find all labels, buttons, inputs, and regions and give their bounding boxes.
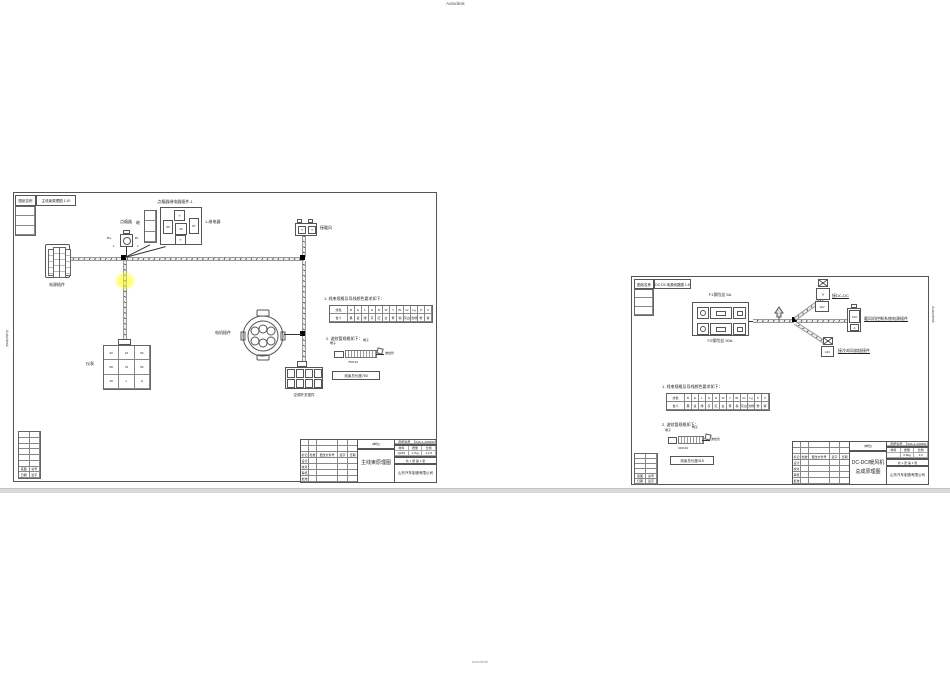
sheet-count: 共 1 张 第 1 张 [394, 457, 437, 464]
panel-branch-harness [302, 261, 306, 361]
grid-cell: 绿 [699, 402, 706, 410]
dcdc-label: 接DC-DC [832, 294, 849, 299]
grid-cell: 灰白 [404, 314, 411, 322]
fan-label: 接冷却风扇插接件 [838, 349, 870, 354]
relay-cell-top: T [174, 210, 185, 221]
relay-cell-right: 87 [189, 218, 199, 234]
signature-grid: 标记处数更改文件号签字日期设计校对审核批准 [300, 439, 358, 483]
grid-cell: 0.6kg [901, 453, 915, 458]
left-corner-table: 底图总号日期签字 [18, 431, 41, 479]
left-header-value: 主线束原理图 1:10 [36, 195, 76, 206]
sketch-tube [345, 350, 377, 358]
left-title-block: 标记处数更改文件号签字日期设计校对审核批准 (单位) 主线束原理图 图纸编号04… [300, 439, 437, 483]
relay-left-label: 继 [136, 221, 140, 226]
grid-cell: L [119, 375, 134, 389]
terminal-label-right: 端子 [363, 339, 369, 342]
material-grid: 材料质量比例Q2351.7kg1:2.5 [394, 445, 437, 457]
watermark-bottom: autodesk [472, 659, 488, 664]
heater-conn-v: 12V [849, 310, 860, 323]
grid-cell: G [369, 306, 376, 314]
watermark-right-edge: Autodesk [931, 306, 936, 323]
fuse-pin-left: B/+ [107, 237, 112, 240]
grid-cell: 1.7kg [409, 451, 423, 456]
left-revision-strip [15, 206, 36, 236]
grid-cell: 灰 [369, 314, 376, 322]
grid-cell: 图纸编号 [395, 440, 415, 444]
grid-cell: 黑 [348, 314, 355, 322]
grid-cell: 红 [376, 314, 383, 322]
grid-cell: 1:2 [914, 453, 928, 458]
material-grid: 材料质量比例0.6kg1:2 [886, 447, 929, 459]
right-title-block: 标记处数更改文件号签字日期设计校对审核批准 (单位) DC-DC/暖风机 总成原… [792, 441, 929, 485]
grid-cell: Y [390, 306, 397, 314]
left-note-1: 1. 线束规格及导线颜色要求如下： [324, 297, 384, 302]
grid-cell [887, 453, 901, 458]
grid-cell: W [383, 306, 390, 314]
grid-cell: B [685, 394, 692, 402]
drawing-title: DC-DC/暖风机 [850, 459, 886, 466]
title-cell: DC-DC/暖风机 总成原理图 [849, 451, 887, 485]
left-wire-table: 线色BELGRWYBrGrLgPV含义黑蓝绿灰红白黄棕灰白浅绿粉紫 [329, 305, 433, 323]
grid-cell: 浅绿 [748, 402, 755, 410]
unit-cell: (单位) [849, 441, 887, 451]
grid-cell: 红 [713, 402, 720, 410]
highlight-marker [116, 273, 134, 289]
sketch-dim: 750±10 [348, 361, 358, 364]
grid-cell: 批准 [793, 478, 801, 484]
grid-cell: 蓝 [355, 314, 362, 322]
relay-cell-bottom: T [175, 235, 186, 245]
grid-cell [635, 298, 653, 306]
grid-cell: 15 [119, 346, 134, 360]
grid-cell: 灰白 [741, 402, 748, 410]
drawing-title-2: 总成原理图 [850, 468, 886, 475]
watermark-top: Autodesk [446, 1, 465, 6]
dcdc-symbol-cell: Y [816, 288, 830, 300]
power-connector [45, 244, 70, 278]
grid-cell: 31 [119, 360, 134, 374]
r-sketch-terminal-left [668, 437, 677, 444]
grid-cell [801, 478, 809, 484]
drawing-title: 主线束原理图 [358, 459, 394, 466]
grid-cell: 粉 [755, 402, 762, 410]
grid-cell [145, 232, 156, 242]
right-drawing-sheet: 图纸名称 DC-DC电源线路图 1:5 F1保险丝 5A F2保险丝 20A Y… [631, 276, 929, 485]
grid-cell: 粉 [418, 314, 425, 322]
grid-cell: 日期 [635, 479, 646, 484]
total-length-box: 线束总长度750 [332, 371, 380, 380]
heater-cell-1: T [298, 226, 306, 234]
grid-cell: 含义 [330, 314, 348, 322]
grid-cell: 签字 [646, 479, 657, 484]
left-drawing-sheet: 图纸名称 主线束原理图 1:10 点烟器 B/+ B/- 1 1 点烟器继电器插… [13, 192, 437, 482]
grid-cell: 1:2.5 [422, 451, 436, 456]
grid-cell: Gr [741, 394, 748, 402]
grid-cell: Br [734, 394, 741, 402]
grid-cell: 白 [720, 402, 727, 410]
grid-cell: Y [727, 394, 734, 402]
grid-cell: L [699, 394, 706, 402]
tube-arrow [376, 354, 384, 355]
heater-connector: T T [295, 223, 317, 236]
harness-clip-icon [773, 306, 785, 320]
panel-connector-label: 空调开关插件 [280, 393, 328, 397]
grid-cell: 58 [104, 360, 119, 374]
unit-cell: (单位) [357, 439, 395, 449]
grid-cell: 30 [104, 346, 119, 360]
fuse-symbol [123, 237, 131, 245]
grid-cell [309, 476, 317, 482]
grid-cell: Q235 [395, 451, 409, 456]
sheet-count: 共 1 张 第 1 张 [886, 459, 929, 466]
grid-cell: H [135, 375, 150, 389]
grid-cell: 含义 [667, 402, 685, 410]
grid-cell: 黄 [727, 402, 734, 410]
r-sketch-tube [678, 436, 704, 444]
r-sketch-dim: 315±10 [678, 447, 688, 450]
grid-cell: 50 [135, 346, 150, 360]
relay-cell-left: 85 [163, 220, 173, 234]
grid-cell: B [348, 306, 355, 314]
heater-power-label: 暖风机控制系统电源插件 [864, 317, 908, 322]
grid-cell [145, 221, 156, 231]
grid-cell [317, 476, 338, 482]
relay-right-label: 1-继电器 [205, 220, 221, 225]
heater-branch-harness [302, 236, 306, 257]
grid-cell: 批准 [301, 476, 309, 482]
grid-cell: P [755, 394, 762, 402]
dcdc-terminal-icon [818, 279, 828, 287]
fuse2-label: F2保险丝 20A [690, 339, 750, 344]
grid-cell: V [762, 394, 769, 402]
grid-cell: E [692, 394, 699, 402]
fuse-sub-left: 1 [113, 245, 115, 248]
dcdc-voltage-cell: 12V [815, 301, 829, 312]
grid-cell [16, 226, 35, 235]
fuse1-label: F1保险丝 5A [690, 293, 750, 298]
grid-cell: Br [397, 306, 404, 314]
grid-cell: 灰 [706, 402, 713, 410]
fan-voltage-cell: 12V [821, 346, 834, 357]
grid-cell: Lg [411, 306, 418, 314]
company-name: 山东汽车制造有限公司 [394, 464, 437, 483]
relay-left-connector [144, 210, 157, 243]
grid-cell: Lg [748, 394, 755, 402]
grid-cell: 04A-4-A00000 [415, 440, 436, 444]
relay-title: 点烟器继电器插件-1 [140, 200, 210, 205]
fuse-box [692, 302, 749, 336]
heater-conn: 12V A [847, 308, 861, 332]
right-header-value: DC-DC电源线路图 1:5 [654, 279, 691, 289]
grid-cell: G [706, 394, 713, 402]
left-header-label: 图纸名称 [15, 195, 36, 206]
fuse-pin-right: B/- [135, 237, 139, 240]
grid-cell [338, 476, 348, 482]
title-cell: 主线束原理图 [357, 449, 395, 483]
meter-connector: 30155058315649LH [103, 345, 151, 390]
motor-connector-label: 电机插件 [215, 331, 231, 336]
r-total-length-box: 线束总长度318 [670, 456, 714, 465]
motor-lead [284, 334, 302, 335]
main-harness [69, 257, 304, 261]
fan-terminal-icon [823, 337, 833, 345]
r-terminal-label-left: 端子 [665, 429, 671, 432]
grid-cell: 图纸编号 [887, 442, 907, 446]
r-tube-arrow [702, 440, 710, 441]
grid-cell: 棕 [734, 402, 741, 410]
grid-cell: 56 [135, 360, 150, 374]
grid-cell: 签字 [30, 472, 41, 478]
grid-cell: 黄 [390, 314, 397, 322]
grid-cell: 04A-4-A00001 [907, 442, 928, 446]
heater-label: 接暖风 [320, 226, 332, 231]
grid-cell: 日期 [19, 472, 30, 478]
relay-cell-mid: 30 [175, 223, 187, 235]
grid-cell: R [713, 394, 720, 402]
right-note-1: 1. 线束规格及导线颜色要求如下： [662, 385, 722, 390]
r-tube-label: 波纹管 [711, 438, 720, 441]
right-corner-table: 底图总号日期签字 [634, 453, 658, 485]
panel-connector [285, 367, 323, 389]
grid-cell: 49 [104, 375, 119, 389]
grid-cell: 白 [383, 314, 390, 322]
grid-cell: W [720, 394, 727, 402]
grid-cell [635, 307, 653, 315]
grid-cell: 紫 [425, 314, 432, 322]
relay-main-block: T 85 30 87 T [160, 207, 202, 245]
fuse-body [120, 234, 133, 247]
grid-cell: 蓝 [692, 402, 699, 410]
signature-grid: 标记处数更改文件号签字日期设计校对审核批准 [792, 441, 850, 485]
grid-cell: 线色 [667, 394, 685, 402]
grid-cell [16, 216, 35, 225]
grid-cell [145, 211, 156, 221]
grid-cell: 黑 [685, 402, 692, 410]
grid-cell: V [425, 306, 432, 314]
grid-cell: P [418, 306, 425, 314]
grid-cell: R [376, 306, 383, 314]
right-revision-strip [634, 289, 654, 316]
grid-cell: L [362, 306, 369, 314]
grid-cell: Gr [404, 306, 411, 314]
grid-cell [16, 207, 35, 216]
right-wire-table: 线色BELGRWYBrGrLgPV含义黑蓝绿灰红白黄棕灰白浅绿粉紫 [666, 393, 770, 411]
branch-harness-right [797, 319, 847, 323]
heater-cell-2: T [308, 226, 316, 234]
fuse-sub-right: 1 [137, 245, 139, 248]
power-connector-label: 电源插件 [40, 283, 74, 288]
motor-connector [240, 309, 286, 361]
grid-cell [830, 478, 840, 484]
grid-cell: 紫 [762, 402, 769, 410]
grid-cell: 绿 [362, 314, 369, 322]
grid-cell: E [355, 306, 362, 314]
grid-cell: 棕 [397, 314, 404, 322]
terminal-label-left: 端子 [330, 342, 336, 345]
right-header-label: 图纸名称 [634, 279, 654, 289]
grid-cell: 浅绿 [411, 314, 418, 322]
grid-cell: 线色 [330, 306, 348, 314]
grid-cell [635, 290, 653, 298]
tube-label: 波纹管 [385, 352, 394, 355]
junction-dot-2 [300, 255, 305, 260]
sketch-terminal-left [334, 351, 344, 358]
bottom-separator [0, 488, 950, 493]
grid-cell [809, 478, 830, 484]
company-name: 山东汽车制造有限公司 [886, 466, 929, 485]
meter-label: 仪表 [86, 362, 94, 367]
r-terminal-label-right: 端子 [692, 426, 698, 429]
watermark-left-edge: Autodesk [5, 330, 10, 347]
heater-conn-a: A [850, 324, 859, 331]
